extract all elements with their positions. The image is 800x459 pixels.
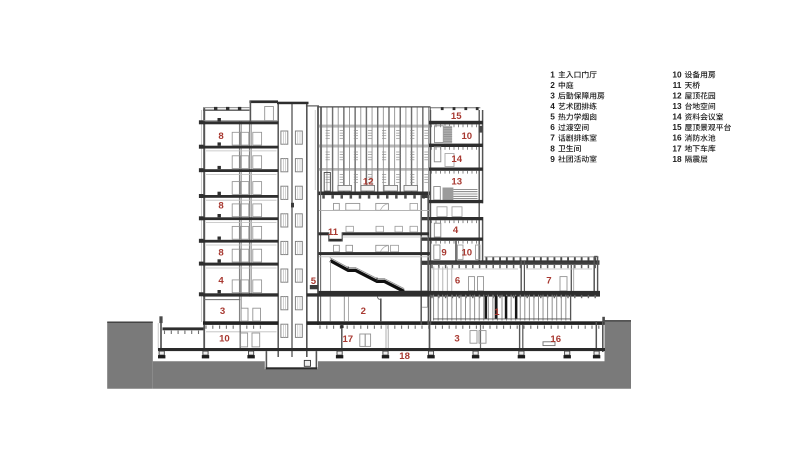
svg-text:11: 11 [673,80,682,90]
svg-text:14: 14 [451,154,462,165]
svg-text:13: 13 [672,101,682,111]
svg-text:11: 11 [328,227,339,238]
svg-text:14: 14 [672,112,682,122]
svg-text:6: 6 [550,122,555,132]
svg-text:8: 8 [218,201,224,212]
svg-text:2: 2 [550,80,555,90]
svg-text:16: 16 [672,133,682,143]
svg-text:3: 3 [220,306,225,317]
svg-text:7: 7 [546,276,551,287]
svg-text:10: 10 [461,247,472,258]
svg-text:7: 7 [550,133,555,143]
svg-text:12: 12 [363,177,374,188]
svg-text:16: 16 [550,334,561,345]
svg-text:2: 2 [361,306,366,317]
svg-text:8: 8 [218,248,224,259]
svg-text:8: 8 [550,143,555,153]
svg-text:10: 10 [219,333,230,344]
svg-text:9: 9 [550,154,555,164]
svg-text:4: 4 [218,276,224,287]
svg-text:6: 6 [455,276,460,287]
svg-text:3: 3 [550,91,555,101]
svg-text:12: 12 [672,91,682,101]
svg-text:15: 15 [672,122,682,132]
svg-text:3: 3 [454,334,459,345]
svg-text:10: 10 [461,131,472,142]
svg-text:1: 1 [550,69,555,79]
svg-text:9: 9 [441,247,446,258]
svg-text:17: 17 [672,143,682,153]
svg-text:10: 10 [672,69,682,79]
svg-text:18: 18 [399,351,410,362]
svg-text:15: 15 [451,111,462,122]
svg-text:5: 5 [550,112,555,122]
svg-text:13: 13 [451,177,462,188]
svg-text:4: 4 [550,101,555,111]
svg-text:18: 18 [672,154,682,164]
svg-text:17: 17 [342,334,353,345]
svg-text:4: 4 [453,225,459,236]
svg-text:8: 8 [218,131,224,142]
svg-text:5: 5 [311,276,317,287]
svg-text:1: 1 [494,307,500,318]
